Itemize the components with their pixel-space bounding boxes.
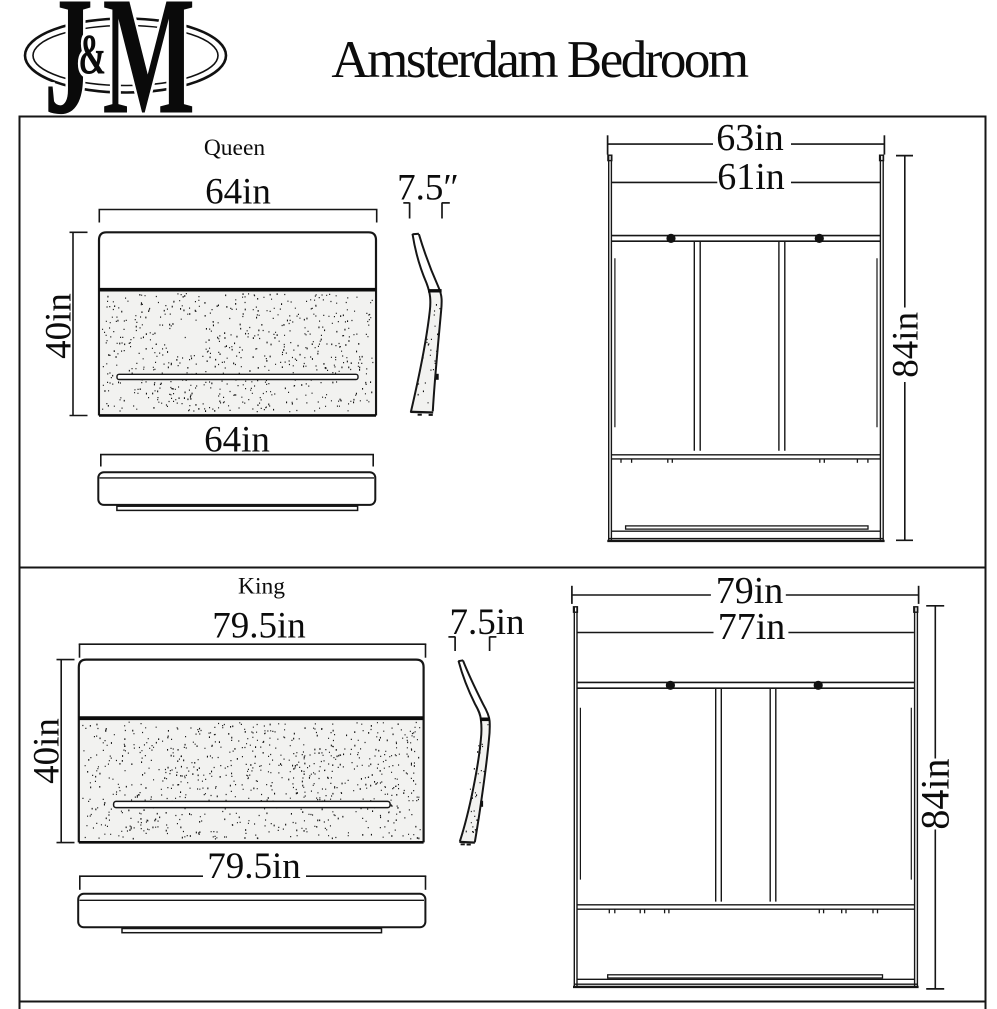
svg-text:79.5in: 79.5in <box>212 605 306 646</box>
svg-text:61in: 61in <box>717 156 785 198</box>
svg-text:77in: 77in <box>718 606 786 648</box>
svg-text:84in: 84in <box>913 758 958 829</box>
svg-text:M: M <box>103 0 195 149</box>
svg-text:7.5in: 7.5in <box>449 602 524 643</box>
svg-text:King: King <box>238 574 285 600</box>
svg-text:Queen: Queen <box>204 135 266 161</box>
svg-text:64in: 64in <box>205 172 271 213</box>
svg-text:84in: 84in <box>886 312 927 378</box>
svg-text:63in: 63in <box>716 117 784 159</box>
svg-text:40in: 40in <box>27 718 68 784</box>
svg-text:79.5in: 79.5in <box>207 846 301 887</box>
svg-text:Amsterdam Bedroom: Amsterdam Bedroom <box>331 31 749 89</box>
svg-text:40in: 40in <box>39 293 80 359</box>
